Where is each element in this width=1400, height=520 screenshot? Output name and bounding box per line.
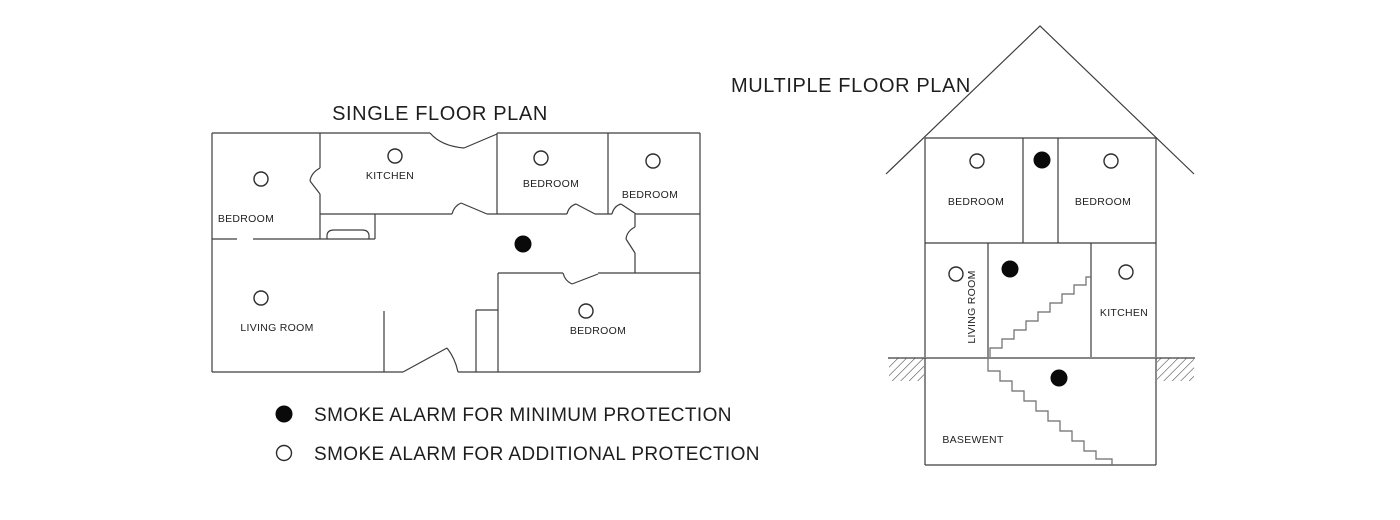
room-label-upper-bedroom-left: BEDROOM [948, 196, 1004, 208]
room-label-bedroom-4: BEDROOM [570, 325, 626, 337]
floor-plan-page: SINGLE FLOOR PLAN [0, 0, 1400, 520]
additional-alarm-bedroom-2-icon [534, 151, 548, 165]
room-label-living-room: LIVING ROOM [240, 322, 313, 334]
top-door-swing [430, 133, 497, 148]
multiple-floor-plan-title: MULTIPLE FLOOR PLAN [731, 75, 971, 97]
additional-alarm-bedroom-4-icon [579, 304, 593, 318]
single-floor-plan: SINGLE FLOOR PLAN [212, 103, 700, 372]
additional-protection-legend-label: SMOKE ALARM FOR ADDITIONAL PROTECTION [314, 444, 760, 465]
room-label-upper-bedroom-right: BEDROOM [1075, 196, 1131, 208]
bedroom2-walls [497, 133, 608, 214]
room-label-kitchen: KITCHEN [1100, 307, 1148, 319]
minimum-alarm-upper-hall-icon [1034, 152, 1050, 168]
room-label-bedroom-1: BEDROOM [218, 213, 274, 225]
bedroom1-kitchen-wall [310, 133, 320, 239]
room-label-basement: BASEWENT [942, 434, 1004, 446]
bedroom3-walls [608, 133, 700, 214]
front-door-swing [403, 348, 458, 372]
bedroom4-walls [498, 273, 700, 372]
multiple-floor-plan: MULTIPLE FLOOR PLAN [731, 26, 1195, 465]
ground-hatch-right [1157, 358, 1194, 381]
additional-protection-legend-icon [277, 446, 292, 461]
legend: SMOKE ALARM FOR MINIMUM PROTECTION SMOKE… [276, 405, 760, 465]
room-label-bedroom-2: BEDROOM [523, 178, 579, 190]
additional-alarm-upper-bedroom-left-icon [970, 154, 984, 168]
additional-alarm-living-room-icon [254, 291, 268, 305]
kitchen-hall-wall [320, 203, 497, 214]
room-label-kitchen: KITCHEN [366, 170, 414, 182]
single-plan-outer-walls [212, 133, 700, 372]
additional-alarm-bedroom-3-icon [646, 154, 660, 168]
additional-alarm-kitchen-icon [1119, 265, 1133, 279]
room-label-bedroom-3: BEDROOM [622, 189, 678, 201]
house-body-walls [925, 138, 1156, 357]
bathroom-wall [626, 214, 635, 273]
additional-alarm-kitchen-icon [388, 149, 402, 163]
single-floor-plan-title: SINGLE FLOOR PLAN [332, 103, 548, 125]
main-floor-stairs [990, 277, 1091, 357]
additional-alarm-upper-bedroom-right-icon [1104, 154, 1118, 168]
minimum-alarm-hallway-icon [515, 236, 531, 252]
main-floor-walls [988, 243, 1091, 357]
basement-stairs [988, 358, 1112, 465]
entry-closet-walls [384, 310, 498, 372]
minimum-alarm-stair-hall-icon [1002, 261, 1018, 277]
floor-plan-diagram: SINGLE FLOOR PLAN [0, 0, 1400, 520]
minimum-protection-legend-label: SMOKE ALARM FOR MINIMUM PROTECTION [314, 405, 732, 426]
additional-alarm-bedroom-1-icon [254, 172, 268, 186]
ground-hatch-left [889, 358, 924, 381]
kitchen-closet [320, 214, 375, 239]
minimum-alarm-basement-icon [1051, 370, 1067, 386]
room-label-living-room-vertical: LIVING ROOM [966, 270, 978, 343]
additional-alarm-living-room-icon [949, 267, 963, 281]
minimum-protection-legend-icon [276, 406, 292, 422]
